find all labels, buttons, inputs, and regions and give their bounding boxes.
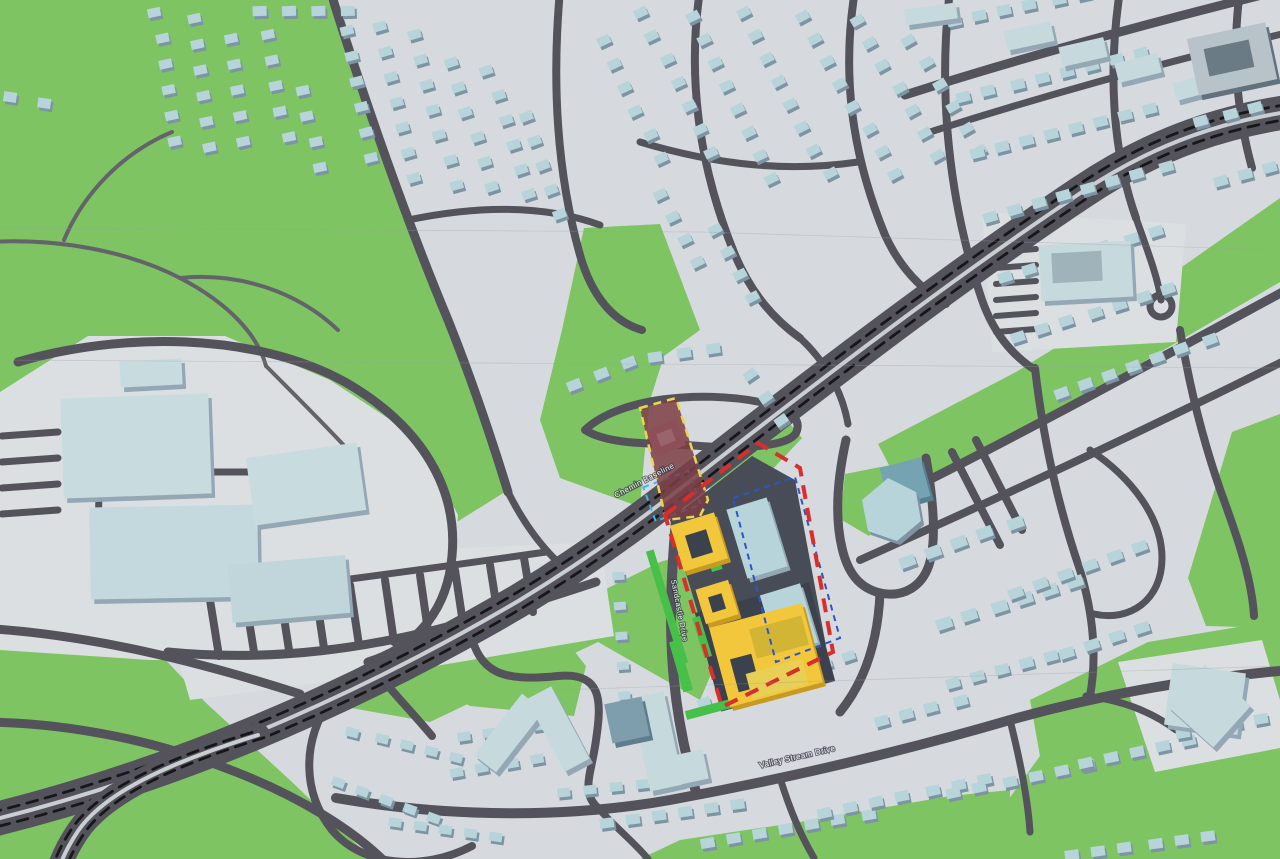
map-layers — [0, 0, 1280, 859]
map-canvas[interactable]: Chemin Baseline Sandcastle Drive Valley … — [0, 0, 1280, 859]
map-viewport[interactable]: Chemin Baseline Sandcastle Drive Valley … — [0, 0, 1280, 859]
